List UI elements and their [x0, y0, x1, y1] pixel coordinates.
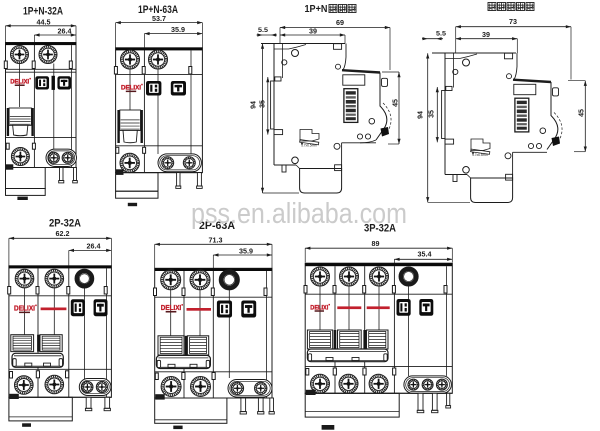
svg-text:DELIXI: DELIXI	[121, 85, 141, 92]
svg-text:DELIXI: DELIXI	[10, 78, 29, 85]
svg-text:94: 94	[251, 101, 258, 109]
svg-text:35: 35	[259, 100, 266, 108]
svg-text:89: 89	[372, 241, 380, 248]
svg-text:1.7x6.5mm: 1.7x6.5mm	[301, 144, 317, 148]
svg-text:45: 45	[579, 109, 586, 117]
svg-text:1P+N-32A: 1P+N-32A	[23, 6, 63, 18]
svg-text:62.2: 62.2	[56, 231, 70, 238]
svg-text:53.7: 53.7	[152, 16, 166, 23]
svg-text:1P+N-63A: 1P+N-63A	[138, 4, 178, 16]
svg-text:73: 73	[509, 19, 517, 26]
svg-text:35.9: 35.9	[171, 27, 185, 34]
svg-text:5.5: 5.5	[436, 30, 446, 37]
svg-text:DELIXI: DELIXI	[14, 304, 35, 313]
svg-text:2P-32A: 2P-32A	[49, 218, 81, 230]
svg-text:DELIXI: DELIXI	[310, 304, 328, 311]
svg-text:26.4: 26.4	[87, 244, 101, 251]
svg-text:69: 69	[336, 20, 344, 27]
svg-text:pss.en.alibaba.com: pss.en.alibaba.com	[191, 198, 407, 230]
svg-text:1P+N: 1P+N	[305, 4, 328, 15]
svg-text:71.3: 71.3	[209, 238, 223, 245]
svg-text:35.4: 35.4	[418, 252, 432, 259]
svg-text:5.5: 5.5	[258, 27, 268, 34]
svg-text:35.9: 35.9	[239, 248, 253, 255]
svg-text:45: 45	[393, 99, 400, 107]
svg-text:DELIXI: DELIXI	[161, 305, 182, 312]
svg-text:94: 94	[418, 111, 425, 119]
svg-text:35: 35	[429, 110, 436, 118]
svg-text:39: 39	[309, 28, 317, 35]
svg-text:39: 39	[482, 32, 490, 39]
svg-text:44.5: 44.5	[37, 19, 51, 26]
svg-text:26.4: 26.4	[58, 29, 72, 36]
svg-text:1.7x6.5mm: 1.7x6.5mm	[472, 153, 488, 157]
